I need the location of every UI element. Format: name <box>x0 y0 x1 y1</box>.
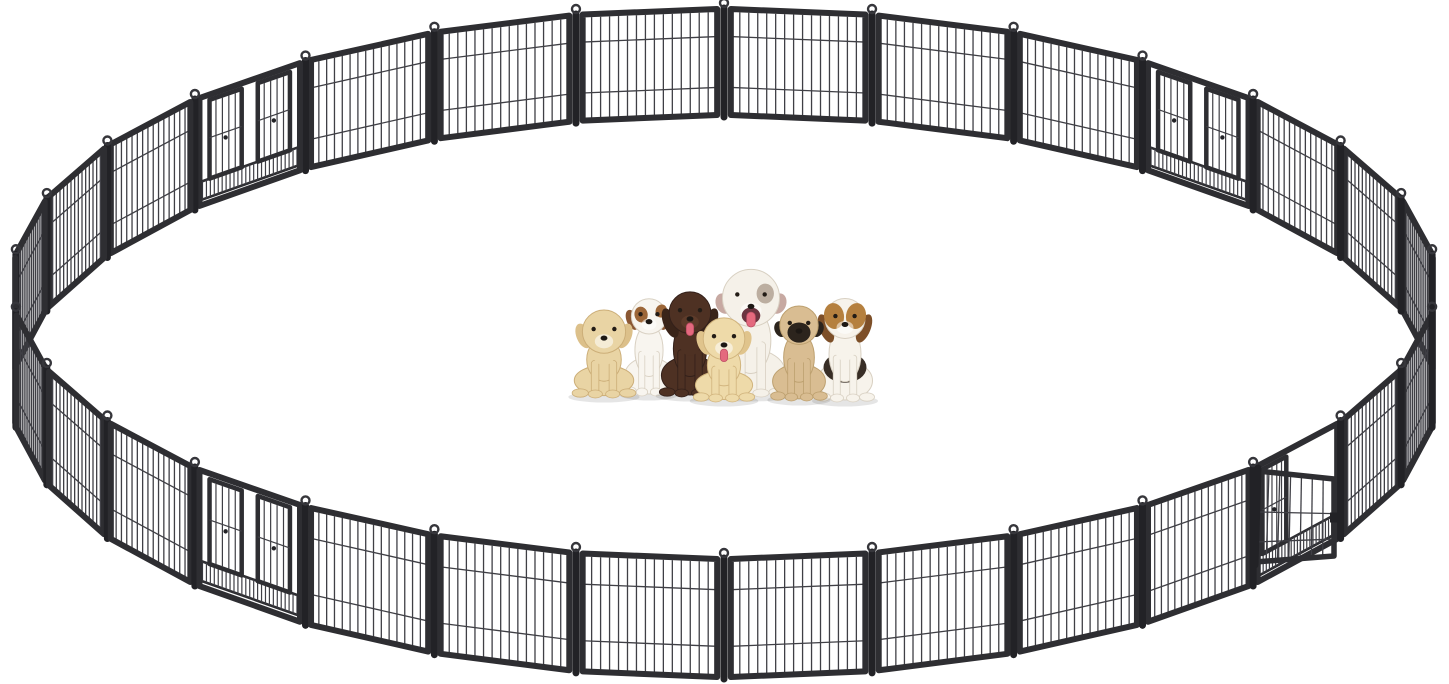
connector-ring <box>103 137 111 145</box>
panel-mesh <box>111 430 190 577</box>
fence-panel <box>301 34 428 171</box>
gate-door-leaf <box>1158 72 1190 162</box>
fence-panel <box>43 149 104 311</box>
panel-frame <box>1020 34 1137 167</box>
panel-frame <box>879 536 1008 670</box>
panel-mesh <box>583 557 718 674</box>
panel-frame <box>879 16 1008 139</box>
panel-frame <box>441 536 570 670</box>
product-image: Large circular heavy-duty metal dog play… <box>0 0 1449 684</box>
panel-mesh <box>731 12 866 117</box>
panel-frame <box>731 9 866 121</box>
gate-panel <box>199 470 309 625</box>
connector-ring <box>191 90 199 98</box>
panel-mesh <box>731 557 866 674</box>
fence-panel <box>430 16 569 142</box>
fence-panel <box>17 315 51 484</box>
panel-mesh <box>879 20 1008 135</box>
door-latch <box>1330 513 1338 523</box>
panel-frame <box>731 554 866 677</box>
panel-frame <box>583 554 718 677</box>
gate-latch <box>1272 507 1276 511</box>
fence-panel <box>49 371 111 538</box>
puppy-golden-puppy-left <box>568 310 639 403</box>
fence-panel <box>1344 359 1405 534</box>
panel-frame <box>49 371 104 534</box>
fence-panel <box>1249 90 1337 253</box>
fence-panel <box>111 424 199 586</box>
gate-door-leaf <box>210 479 242 575</box>
connector-ring <box>572 5 580 13</box>
fence-panel <box>1010 23 1137 167</box>
gate-latch <box>1172 118 1176 122</box>
connector-ring <box>1337 137 1345 145</box>
fence-panel <box>311 508 438 655</box>
fence-panel <box>879 525 1018 670</box>
fence-panel <box>1020 496 1147 651</box>
panel-frame <box>311 508 428 652</box>
panel-frame <box>311 34 428 167</box>
connector-ring <box>1249 90 1257 98</box>
fence-panel <box>441 536 580 673</box>
panel-mesh <box>111 108 190 248</box>
connector-ring <box>720 0 728 7</box>
panel-frame <box>1344 149 1399 307</box>
puppies-group <box>568 269 878 406</box>
gate-panel <box>191 63 300 210</box>
playpen-scene: Large circular heavy-duty metal dog play… <box>0 0 1449 684</box>
gate-latch <box>1220 135 1224 139</box>
fence-panel <box>1337 137 1399 307</box>
panel-frame <box>1344 371 1399 534</box>
panel-mesh <box>1258 108 1337 248</box>
door-hinge-post <box>1255 468 1258 565</box>
panel-mesh <box>879 540 1008 666</box>
fence-panel <box>572 5 717 123</box>
fence-panel <box>583 549 728 679</box>
tongue <box>747 312 756 327</box>
gate-latch <box>223 529 227 533</box>
panel-mesh <box>441 540 570 666</box>
panel-frame <box>49 149 104 307</box>
gate-door-leaf <box>258 72 290 162</box>
fence-back-panels <box>12 0 1431 369</box>
panel-frame <box>1148 470 1249 622</box>
panel-frame <box>583 9 718 121</box>
tongue <box>686 323 693 335</box>
panel-frame <box>441 16 570 139</box>
gate-door-leaf <box>210 89 242 179</box>
panel-mesh <box>441 20 570 135</box>
gate-door-leaf <box>1206 89 1238 179</box>
panel-frame <box>111 102 190 253</box>
tongue <box>720 349 727 361</box>
fence-panel <box>868 5 1007 138</box>
panel-frame <box>1258 102 1337 253</box>
gate-door-leaf <box>258 496 290 592</box>
fence-panel <box>1148 458 1257 622</box>
panel-mesh <box>583 12 718 117</box>
gate-panel <box>1139 52 1249 206</box>
connector-ring <box>868 5 876 13</box>
fence-panel <box>720 0 865 121</box>
panel-frame <box>1020 508 1137 652</box>
gate-latch <box>272 118 276 122</box>
panel-frame <box>111 424 190 582</box>
gate-latch <box>223 135 227 139</box>
connector-ring <box>1397 189 1405 197</box>
fence-panel <box>103 102 190 258</box>
fence-panel <box>731 543 876 677</box>
gate-latch <box>272 546 276 550</box>
